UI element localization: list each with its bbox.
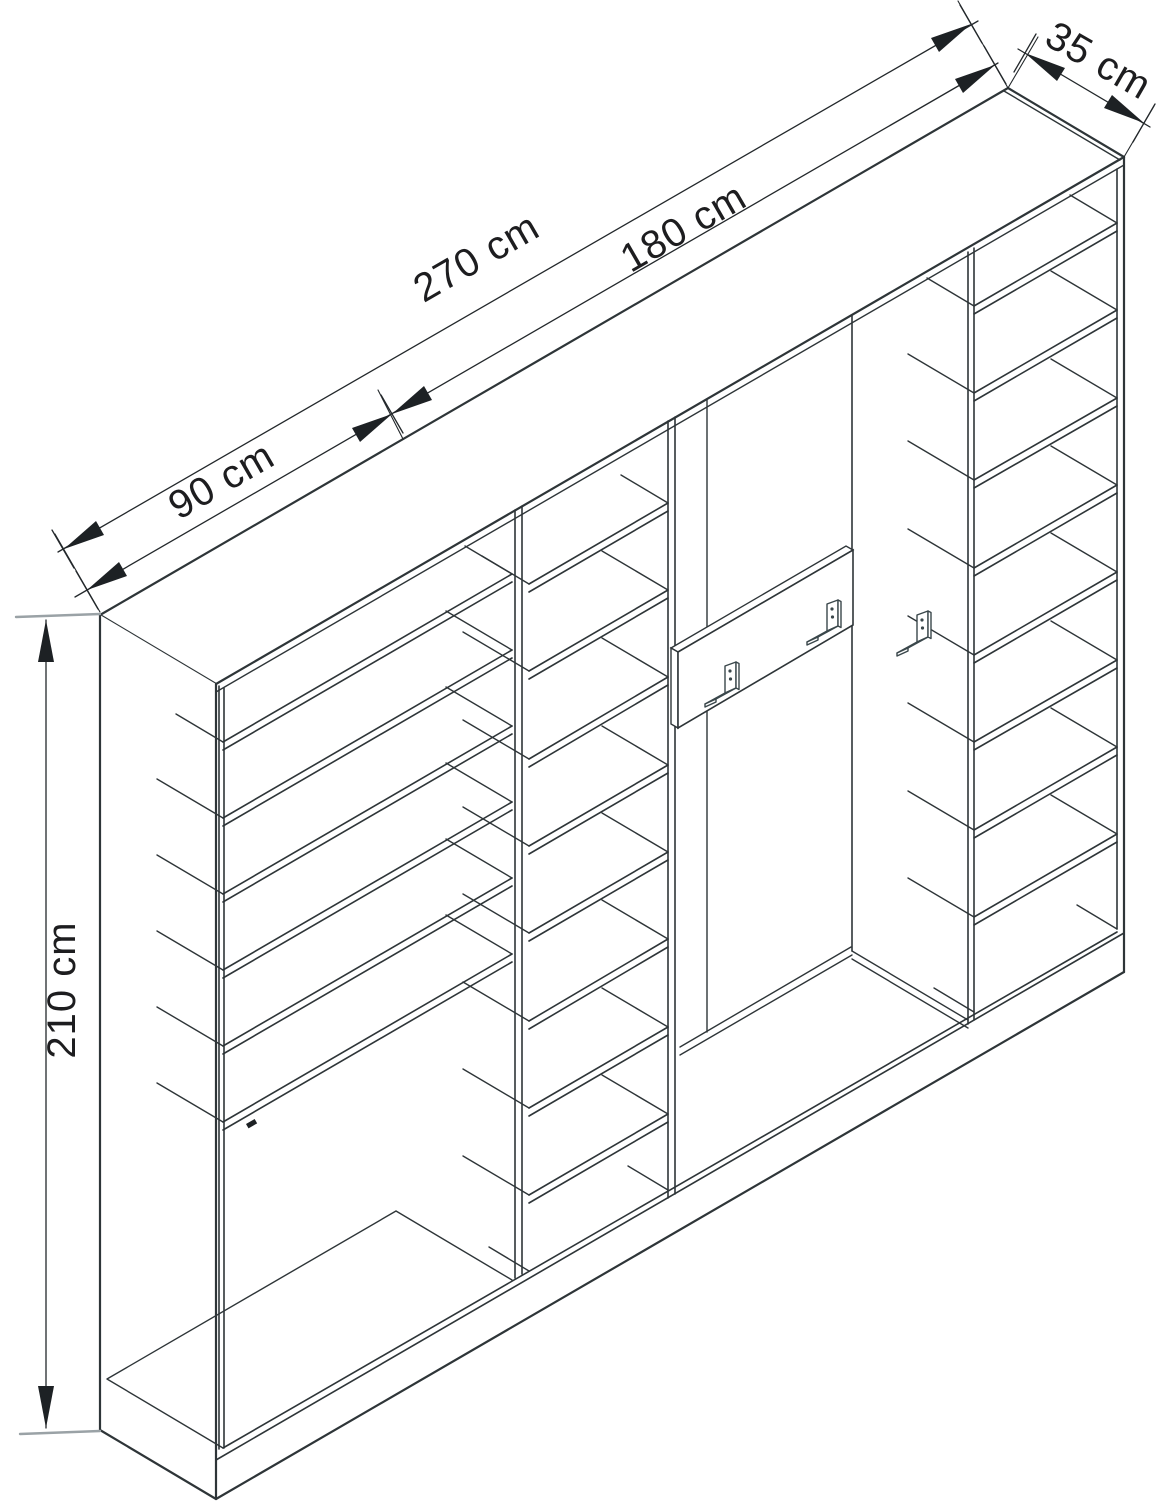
isometric-wardrobe-drawing: 90 cm 180 cm 270 cm 35 cm 210 cm [0,0,1159,1504]
technical-drawing-page: 90 cm 180 cm 270 cm 35 cm 210 cm [0,0,1159,1504]
left-side-panel [100,615,216,1499]
dimension-label-210: 210 cm [40,921,84,1058]
